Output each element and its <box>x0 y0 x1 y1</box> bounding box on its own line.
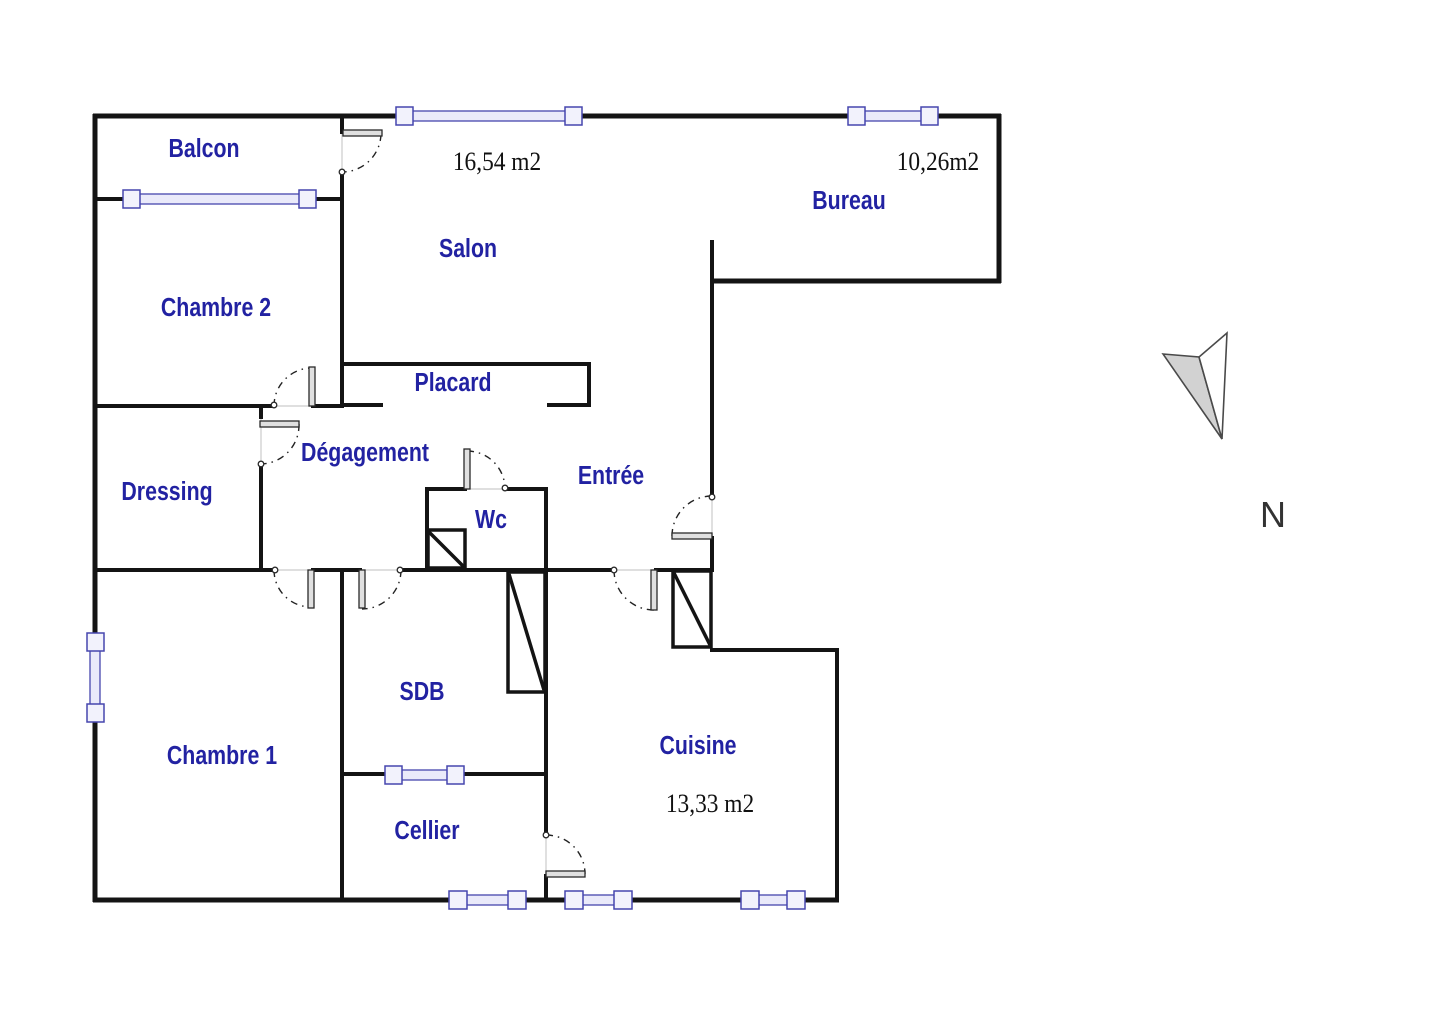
svg-text:Chambre 1: Chambre 1 <box>167 741 277 771</box>
svg-text:Cuisine: Cuisine <box>660 731 737 761</box>
svg-text:Placard: Placard <box>414 368 491 398</box>
svg-text:Entrée: Entrée <box>578 461 644 491</box>
svg-text:Dégagement: Dégagement <box>301 438 429 468</box>
svg-text:Chambre 2: Chambre 2 <box>161 293 271 323</box>
svg-text:SDB: SDB <box>399 677 444 707</box>
svg-text:Cellier: Cellier <box>394 816 459 846</box>
svg-text:13,33 m2: 13,33 m2 <box>666 790 754 818</box>
svg-text:Dressing: Dressing <box>121 477 212 507</box>
svg-text:10,26m2: 10,26m2 <box>897 148 980 176</box>
svg-text:N: N <box>1260 494 1286 535</box>
svg-text:Balcon: Balcon <box>168 134 239 164</box>
svg-text:Wc: Wc <box>475 505 507 535</box>
svg-text:16,54 m2: 16,54 m2 <box>453 148 541 176</box>
svg-text:Salon: Salon <box>439 234 497 264</box>
svg-text:Bureau: Bureau <box>812 186 885 216</box>
